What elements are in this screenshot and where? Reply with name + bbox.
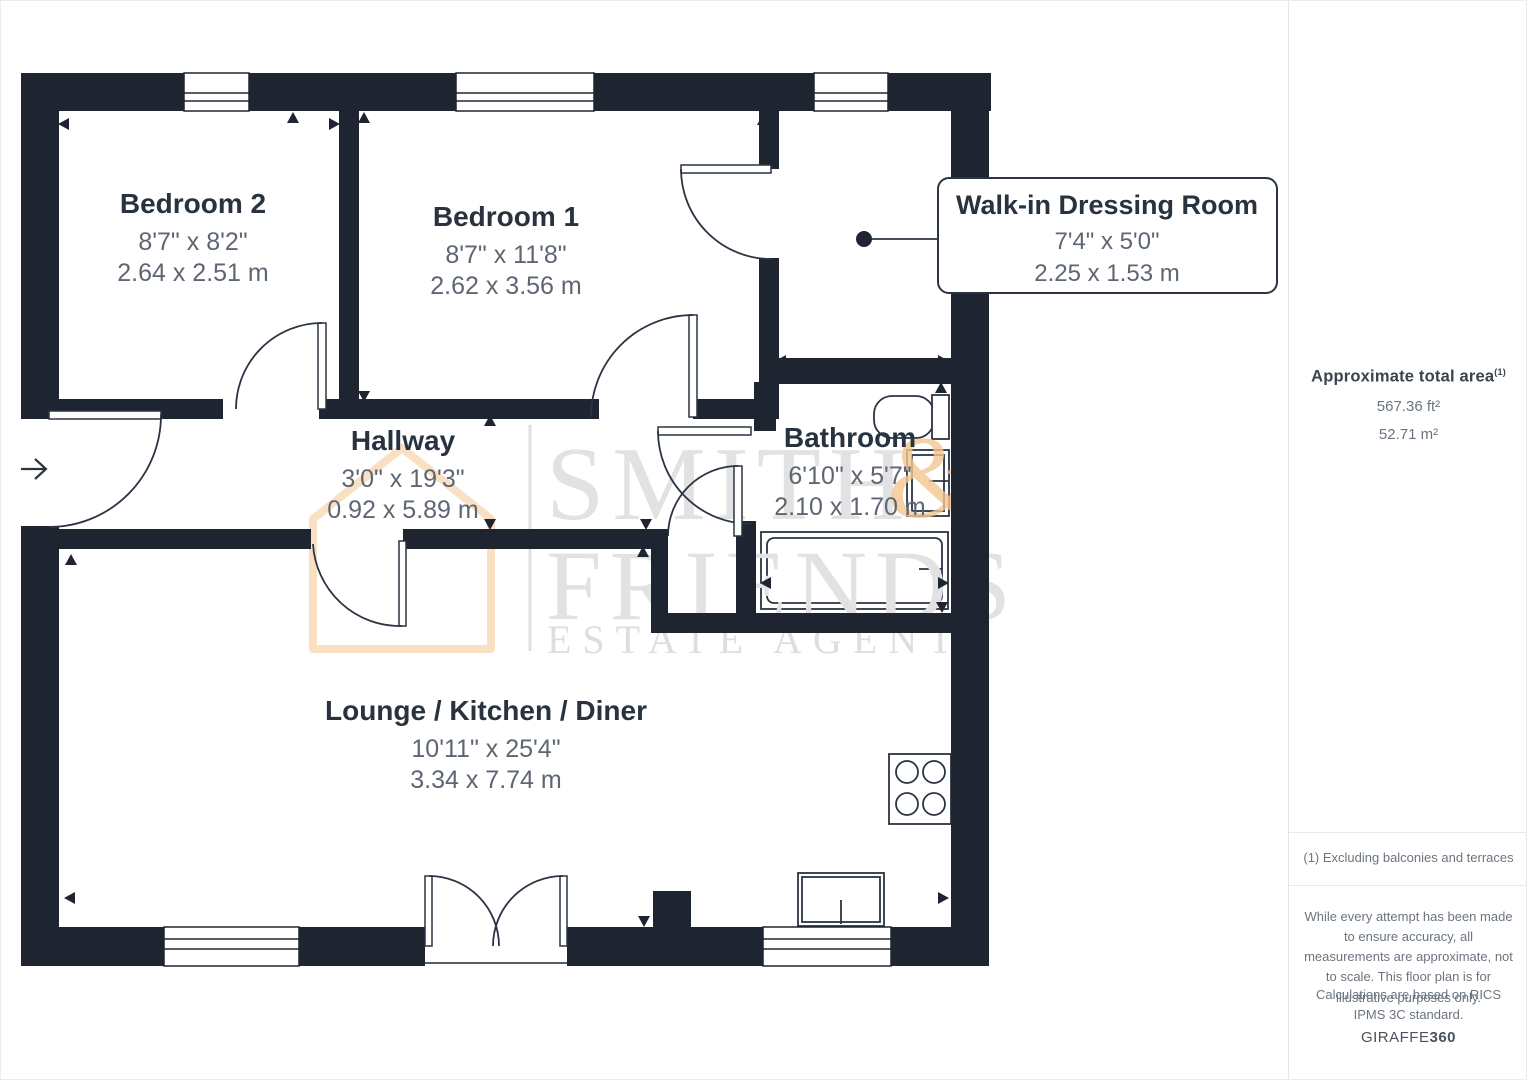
window (164, 927, 299, 966)
kitchen-sink-icon (798, 873, 884, 926)
room-dim-imperial: 7'4" x 5'0" (1055, 228, 1160, 255)
info-sidebar: Approximate total area(1) 567.36 ft² 52.… (1288, 1, 1527, 1080)
room-dim-metric: 2.64 x 2.51 m (117, 259, 268, 287)
room-dim-imperial: 6'10" x 5'7" (788, 462, 911, 490)
room-name: Bedroom 1 (433, 201, 579, 232)
window (763, 927, 891, 966)
total-area-block: Approximate total area(1) 567.36 ft² 52.… (1289, 367, 1527, 443)
dressing-room-callout: Walk-in Dressing Room 7'4" x 5'0" 2.25 x… (856, 178, 1277, 293)
window (814, 73, 888, 111)
french-door-opening (425, 927, 567, 966)
room-label-bathroom: Bathroom 6'10" x 5'7" 2.10 x 1.70 m (774, 422, 925, 521)
room-dim-imperial: 8'7" x 11'8" (445, 241, 566, 269)
bedroom1-door (591, 315, 697, 417)
floor-plan-svg: SMITH & FRIENDS ESTATE AGENTS (1, 1, 1288, 1080)
room-dim-imperial: 3'0" x 19'3" (341, 465, 464, 493)
room-dim-metric: 2.62 x 3.56 m (430, 272, 581, 300)
room-dim-metric: 2.25 x 1.53 m (1034, 260, 1179, 287)
room-label-lounge: Lounge / Kitchen / Diner 10'11" x 25'4" … (325, 695, 647, 794)
lounge-door (313, 541, 406, 626)
room-label-bedroom1: Bedroom 1 8'7" x 11'8" 2.62 x 3.56 m (430, 201, 581, 300)
room-dim-imperial: 10'11" x 25'4" (411, 735, 560, 763)
room-dim-metric: 3.34 x 7.74 m (410, 766, 561, 794)
room-name: Lounge / Kitchen / Diner (325, 695, 647, 726)
sidebar-divider (1289, 885, 1527, 886)
stove-icon (889, 754, 951, 824)
window (456, 73, 594, 111)
room-label-hallway: Hallway 3'0" x 19'3" 0.92 x 5.89 m (327, 425, 478, 524)
sidebar-divider (1289, 832, 1527, 833)
total-area-title: Approximate total area(1) (1289, 367, 1527, 387)
room-name: Walk-in Dressing Room (956, 190, 1258, 220)
giraffe360-logo: GIRAFFE360 (1289, 1029, 1527, 1046)
room-dim-metric: 2.10 x 1.70 m (774, 493, 925, 521)
window (184, 73, 249, 111)
callout-leader-dot (856, 231, 872, 247)
total-area-m: 52.71 m² (1289, 426, 1527, 443)
standard-text: Calculations are based on RICS IPMS 3C s… (1289, 985, 1527, 1025)
bedroom2-door (236, 323, 326, 409)
footnote-text: (1) Excluding balconies and terraces (1289, 848, 1527, 868)
room-dim-metric: 0.92 x 5.89 m (327, 496, 478, 524)
dressing-room-door (681, 165, 771, 259)
area-footnote-marker: (1) (1494, 367, 1506, 377)
room-dim-imperial: 8'7" x 8'2" (138, 228, 247, 256)
total-area-ft: 567.36 ft² (1289, 398, 1527, 415)
room-name: Bedroom 2 (120, 188, 266, 219)
front-door (49, 411, 161, 527)
floor-plan-page: SMITH & FRIENDS ESTATE AGENTS (0, 0, 1527, 1080)
room-label-bedroom2: Bedroom 2 8'7" x 8'2" 2.64 x 2.51 m (117, 188, 268, 287)
room-name: Bathroom (784, 422, 916, 453)
entrance-arrow-icon (21, 459, 46, 479)
room-name: Hallway (351, 425, 456, 456)
